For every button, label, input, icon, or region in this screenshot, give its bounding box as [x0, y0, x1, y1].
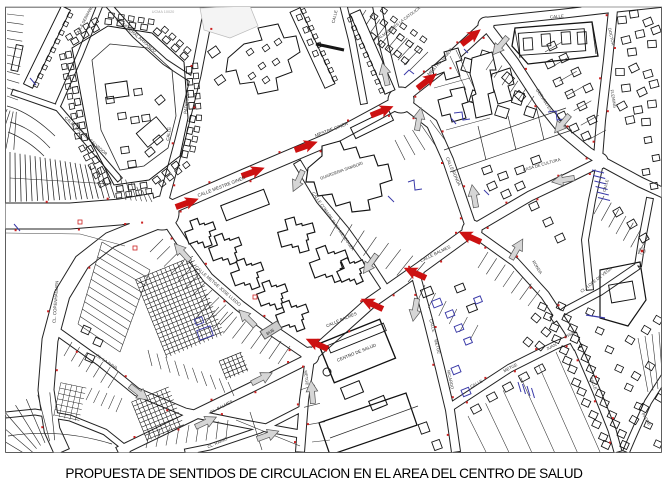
svg-text:CALLE: CALLE — [550, 14, 564, 20]
svg-text:UCMA 10020: UCMA 10020 — [152, 10, 175, 14]
